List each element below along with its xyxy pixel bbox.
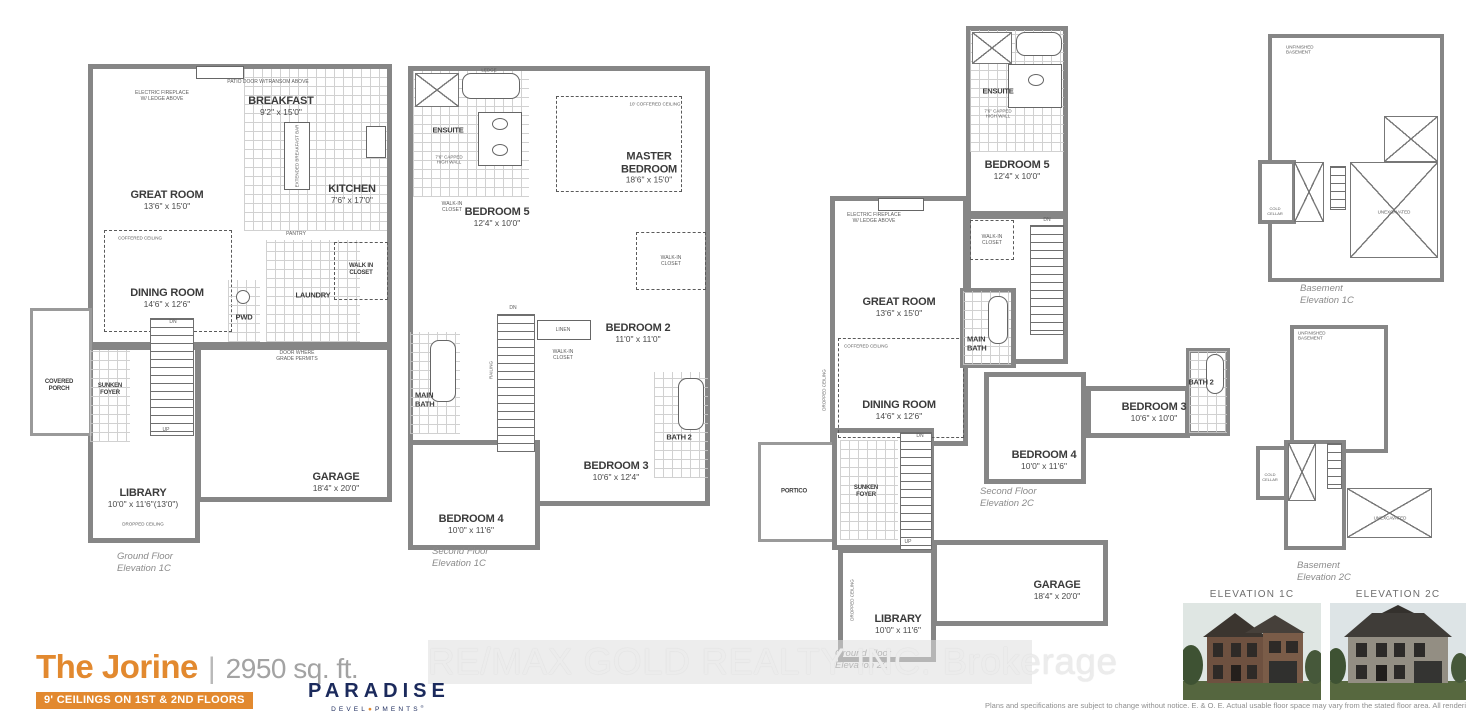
- note-dropped-ceiling: DROPPED CEILING: [821, 369, 826, 411]
- note-cold-cellar: COLD CELLAR: [1257, 473, 1283, 483]
- note-railing: RAILING: [488, 361, 493, 379]
- coffered-ceiling-outline: [838, 338, 964, 438]
- room-label-ensuite: ENSUITE: [982, 88, 1013, 97]
- note-capped-wall: 7'6" CAPPED HIGH WALL: [432, 155, 466, 166]
- fireplace-icon: [878, 198, 924, 211]
- note-patio-door: PATIO DOOR W/TRANSOM ABOVE: [227, 79, 309, 85]
- room-label-sunken-foyer: SUNKEN FOYER: [846, 485, 886, 499]
- wall: [196, 345, 392, 502]
- note-cold-cellar: COLD CELLAR: [1262, 207, 1288, 217]
- note-coffered: COFFERED CEILING: [118, 235, 162, 240]
- note-coffered: COFFERED CEILING: [844, 343, 888, 348]
- house-render-1c: [1183, 603, 1321, 700]
- plan-caption-second-2c: Second Floor Elevation 2C: [980, 486, 1037, 511]
- elevation-1c-photo: [1183, 603, 1321, 700]
- room-label-bedroom-4: BEDROOM 4 10'0" x 11'6": [439, 513, 504, 535]
- sink-icon: [492, 144, 508, 156]
- brand-subtitle: DEVEL●PMENTS®: [308, 704, 450, 713]
- room-label-main-bath: MAIN BATH: [415, 391, 451, 408]
- stairs-icon: [150, 318, 194, 436]
- note-up: UP: [163, 427, 170, 433]
- note-dropped-ceiling: DROPPED CEILING: [122, 521, 164, 526]
- room-label-library: LIBRARY 10'0" x 11'6"(13'0"): [108, 487, 178, 509]
- room-label-pwd: PWD: [236, 314, 253, 323]
- room-label-bedroom-3: BEDROOM 3 10'6" x 12'4": [584, 460, 649, 482]
- room-label-sunken-foyer: SUNKEN FOYER: [90, 383, 130, 397]
- room-label-bedroom-4: BEDROOM 4 10'0" x 11'6": [1012, 449, 1077, 471]
- brand-o-dot-icon: ●: [368, 706, 375, 713]
- stairs-icon: [497, 314, 535, 452]
- brand-wordmark: PARADISE: [308, 680, 450, 703]
- wall: [932, 540, 1108, 626]
- bathtub-icon: [1016, 32, 1062, 56]
- room-label-great-room: GREAT ROOM 13'6" x 15'0": [863, 296, 936, 318]
- vanity-icon: [1008, 64, 1062, 108]
- unexcavated-triangle-icon: [1347, 488, 1432, 538]
- room-label-dining: DINING ROOM 14'6" x 12'6": [130, 287, 204, 309]
- note-walk-in-closet: WALK-IN CLOSET: [547, 349, 579, 361]
- plan-caption-basement-2c: Basement Elevation 2C: [1297, 560, 1351, 585]
- room-label-portico: PORTICO: [781, 489, 807, 496]
- note-unexcavated: UNEXCAVATED: [1378, 209, 1411, 214]
- house-render-2c: [1330, 603, 1466, 700]
- wall: [1290, 325, 1388, 453]
- unexcavated-x-icon: [1384, 116, 1438, 162]
- note-linen: LINEN: [556, 327, 571, 333]
- note-dn: DN: [169, 319, 176, 325]
- room-label-kitchen: KITCHEN 7'6" x 17'0": [328, 183, 376, 205]
- note-dn: DN: [1043, 217, 1050, 223]
- note-walk-in-closet: WALK-IN CLOSET: [436, 201, 468, 213]
- unexcavated-x-icon: [1288, 443, 1316, 501]
- room-label-library: LIBRARY 10'0" x 11'6": [874, 613, 921, 635]
- bathtub-icon: [1206, 354, 1224, 394]
- stove-icon: [366, 126, 386, 158]
- note-walk-in-closet: WALK-IN CLOSET: [655, 255, 687, 267]
- coffered-ceiling-outline: [104, 230, 232, 332]
- note-unfinished-basement: UNFINISHED BASEMENT: [1298, 331, 1338, 342]
- bathtub-icon: [462, 73, 520, 99]
- note-up: UP: [905, 539, 912, 545]
- note-pantry: PANTRY: [286, 231, 306, 237]
- room-label-master-bedroom: MASTER BEDROOM 18'6" x 15'0": [607, 150, 691, 185]
- room-label-breakfast: BREAKFAST 9'2" x 15'0": [248, 95, 313, 117]
- room-label-dining: DINING ROOM 14'6" x 12'6": [862, 399, 936, 421]
- room-label-great-room: GREAT ROOM 13'6" x 15'0": [131, 189, 204, 211]
- room-label-bedroom-5: BEDROOM 5 12'4" x 10'0": [985, 159, 1050, 181]
- note-unexcavated: UNEXCAVATED: [1374, 515, 1407, 520]
- plan-caption-ground-1c: Ground Floor Elevation 1C: [117, 551, 173, 576]
- bathtub-icon: [678, 378, 704, 430]
- fireplace-icon: [196, 66, 244, 79]
- stairs-icon: [1327, 443, 1342, 489]
- room-label-garage: GARAGE 18'4" x 20'0": [312, 471, 359, 493]
- unexcavated-x-icon: [1294, 162, 1324, 222]
- note-dn: DN: [509, 305, 516, 311]
- room-label-laundry: LAUNDRY: [296, 292, 331, 301]
- shower-icon: [415, 73, 459, 107]
- stairs-icon: [1330, 166, 1346, 210]
- note-door-grade: DOOR WHERE GRADE PERMITS: [270, 350, 324, 362]
- room-label-bath-2: BATH 2: [1188, 379, 1213, 388]
- plan-caption-basement-1c: Basement Elevation 1C: [1300, 283, 1354, 308]
- note-dropped-ceiling: DROPPED CEILING: [849, 579, 854, 621]
- note-coffered-10ft: 10' COFFERED CEILING: [629, 101, 680, 106]
- plan-caption-second-1c: Second Floor Elevation 1C: [432, 546, 489, 571]
- room-label-covered-porch: COVERED PORCH: [36, 379, 82, 393]
- note-ledge: LEDGE: [481, 67, 496, 72]
- stairs-icon: [900, 432, 932, 550]
- title-separator: |: [208, 652, 216, 686]
- sink-icon: [236, 290, 250, 304]
- room-label-bedroom-2: BEDROOM 2 11'0" x 11'0": [606, 322, 671, 344]
- room-label-bedroom-5: BEDROOM 5 12'4" x 10'0": [465, 206, 530, 228]
- model-name: The Jorine: [36, 648, 198, 686]
- room-label-main-bath: MAIN BATH: [967, 335, 1001, 352]
- note-breakfast-bar: EXTENDED BREAKFAST BAR: [294, 125, 299, 188]
- room-label-bath-2: BATH 2: [666, 434, 691, 443]
- note-dn: DN: [916, 433, 923, 439]
- room-label-bedroom-3: BEDROOM 3 10'6" x 10'0": [1122, 401, 1187, 423]
- note-capped-wall: 7'6" CAPPED HIGH WALL: [981, 109, 1015, 120]
- registered-mark: ®: [421, 704, 427, 709]
- room-label-walk-in-closet: WALK IN CLOSET: [343, 263, 379, 277]
- elevation-2c-photo: [1330, 603, 1466, 700]
- ceiling-height-badge: 9' CEILINGS ON 1ST & 2ND FLOORS: [36, 692, 253, 709]
- sink-icon: [1028, 74, 1044, 86]
- note-walk-in-closet: WALK-IN CLOSET: [976, 234, 1008, 246]
- floorplan-brochure-page: GREAT ROOM 13'6" x 15'0" BREAKFAST 9'2" …: [0, 0, 1466, 723]
- paradise-developments-logo: PARADISE DEVEL●PMENTS®: [308, 680, 450, 713]
- note-unfinished-basement: UNFINISHED BASEMENT: [1286, 45, 1326, 56]
- brokerage-watermark: RE/MAX GOLD REALTY INC. Brokerage: [428, 640, 1032, 684]
- shower-icon: [972, 32, 1012, 64]
- sink-icon: [492, 118, 508, 130]
- stairs-icon: [1030, 225, 1064, 335]
- elevation-1c-label: ELEVATION 1C: [1210, 589, 1295, 600]
- note-fireplace: ELECTRIC FIREPLACE W/ LEDGE ABOVE: [845, 212, 903, 224]
- elevation-2c-label: ELEVATION 2C: [1356, 589, 1441, 600]
- note-fireplace: ELECTRIC FIREPLACE W/ LEDGE ABOVE: [133, 90, 191, 102]
- disclaimer-text: Plans and specifications are subject to …: [985, 701, 1463, 710]
- room-label-garage: GARAGE 18'4" x 20'0": [1033, 579, 1080, 601]
- room-label-ensuite: ENSUITE: [432, 127, 463, 136]
- wall-porch: [30, 308, 92, 436]
